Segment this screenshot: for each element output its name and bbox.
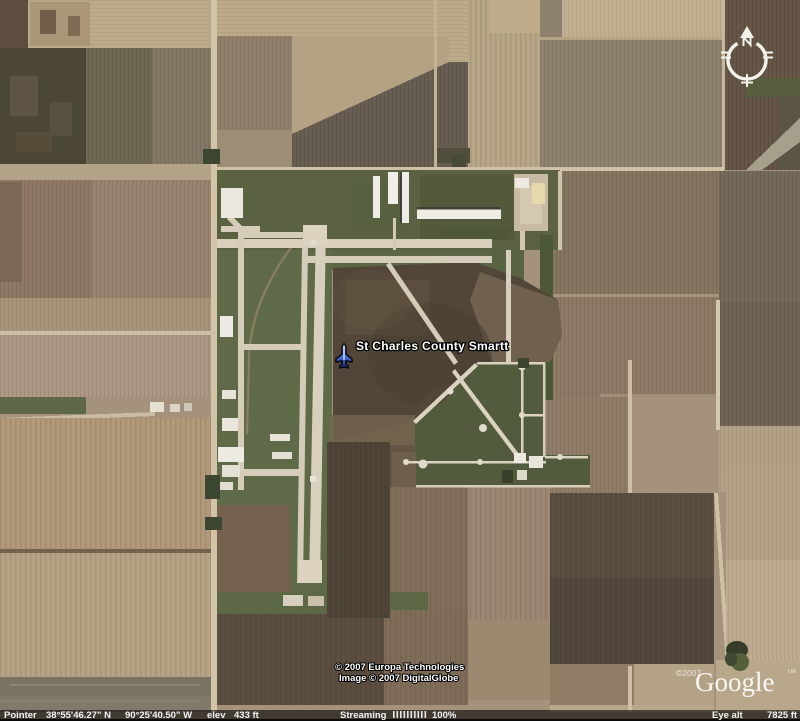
svg-text:Streaming: Streaming bbox=[340, 710, 387, 721]
svg-text:Eye alt: Eye alt bbox=[712, 710, 743, 721]
svg-text:© 2007 Europa Technologies: © 2007 Europa Technologies bbox=[335, 662, 464, 673]
svg-text:7825 ft: 7825 ft bbox=[767, 710, 798, 721]
svg-text:Google: Google bbox=[695, 667, 775, 697]
svg-text:38°55'46.27" N: 38°55'46.27" N bbox=[46, 710, 111, 721]
svg-text:St Charles County Smartt: St Charles County Smartt bbox=[356, 339, 509, 353]
svg-text:433 ft: 433 ft bbox=[234, 710, 260, 721]
svg-text:100%: 100% bbox=[432, 710, 457, 721]
svg-text:Image © 2007 DigitalGlobe: Image © 2007 DigitalGlobe bbox=[339, 673, 458, 684]
svg-text:TM: TM bbox=[787, 669, 796, 675]
svg-text:Pointer: Pointer bbox=[4, 710, 37, 721]
svg-text:elev: elev bbox=[207, 710, 226, 721]
svg-text:90°25'40.50" W: 90°25'40.50" W bbox=[125, 710, 192, 721]
